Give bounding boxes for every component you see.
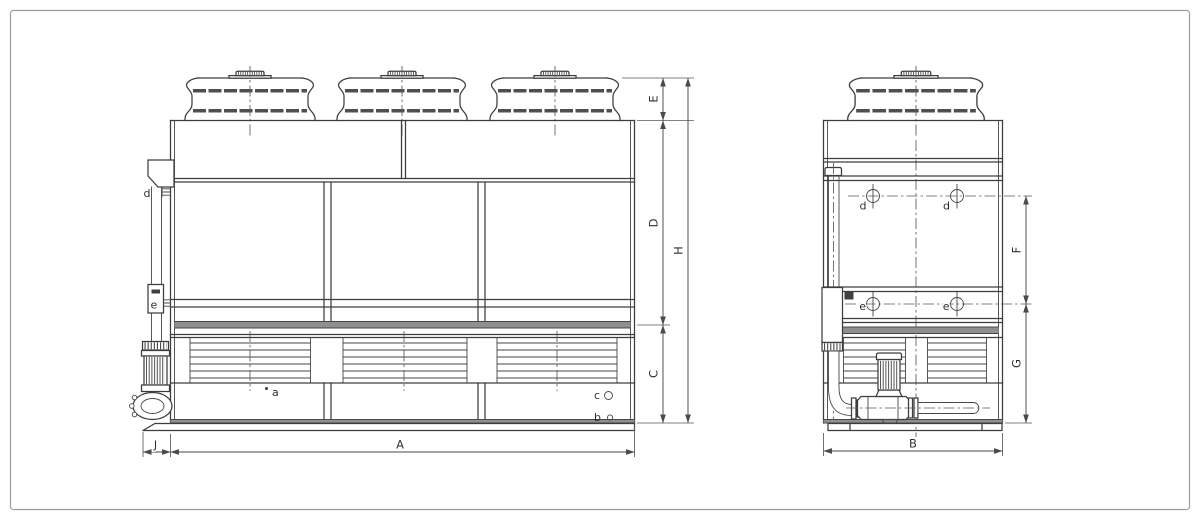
front-port-labels: d e a c b — [144, 187, 613, 424]
front-view: d e a c b — [130, 66, 635, 431]
side-view: d d e e — [822, 66, 1032, 437]
basin-front — [171, 383, 635, 423]
louvers-front — [171, 331, 635, 391]
plenum-divider — [402, 121, 406, 179]
dim-label-D: D — [647, 218, 661, 227]
standpipe-top-bracket — [148, 160, 174, 187]
front-dimensions: E D C H J A — [143, 78, 694, 457]
dim-label-E: E — [647, 95, 661, 102]
water-distribution-band — [175, 322, 631, 329]
louvers-side — [824, 338, 1003, 384]
dim-label-F: F — [1010, 247, 1024, 254]
inlet-flange-d — [162, 187, 171, 197]
dim-label-H: H — [672, 246, 686, 255]
base-skid-front — [143, 424, 635, 431]
port-label-d: d — [144, 187, 151, 200]
port-label-d-left: d — [860, 200, 867, 213]
fan-cowl-right — [490, 66, 620, 136]
side-connections: d d e e — [845, 185, 1033, 317]
pump-front — [130, 351, 173, 420]
port-label-a: a — [272, 386, 279, 399]
pump-volute-front — [133, 393, 172, 420]
dim-label-C: C — [647, 370, 661, 378]
pump-side — [846, 353, 990, 423]
port-label-e-right: e — [943, 300, 950, 313]
port-label-b: b — [594, 411, 601, 424]
base-skid-side — [828, 424, 1002, 431]
control-box — [845, 292, 854, 300]
port-mark-a — [265, 387, 268, 390]
pump-motor-front — [144, 356, 167, 385]
port-label-c: c — [594, 389, 600, 402]
panel-mullions — [324, 182, 485, 322]
dim-label-J: J — [153, 439, 157, 452]
drawing-sheet: d e a c b E D C H J A — [0, 0, 1200, 520]
fan-cowl-left — [185, 66, 315, 136]
port-label-e-left: e — [859, 300, 866, 313]
port-label-d-right: d — [943, 200, 950, 213]
pump-volute-side — [858, 397, 911, 420]
port-label-e: e — [151, 299, 158, 312]
dim-label-G: G — [1010, 359, 1024, 368]
basin-side — [824, 420, 1003, 431]
port-mark-c — [605, 392, 613, 400]
sheet-border — [11, 11, 1190, 510]
dim-label-B: B — [909, 437, 917, 451]
dim-label-A: A — [396, 438, 404, 452]
fan-cowl-side — [848, 66, 985, 136]
cooling-tower-drawing: d e a c b E D C H J A — [0, 0, 1200, 520]
